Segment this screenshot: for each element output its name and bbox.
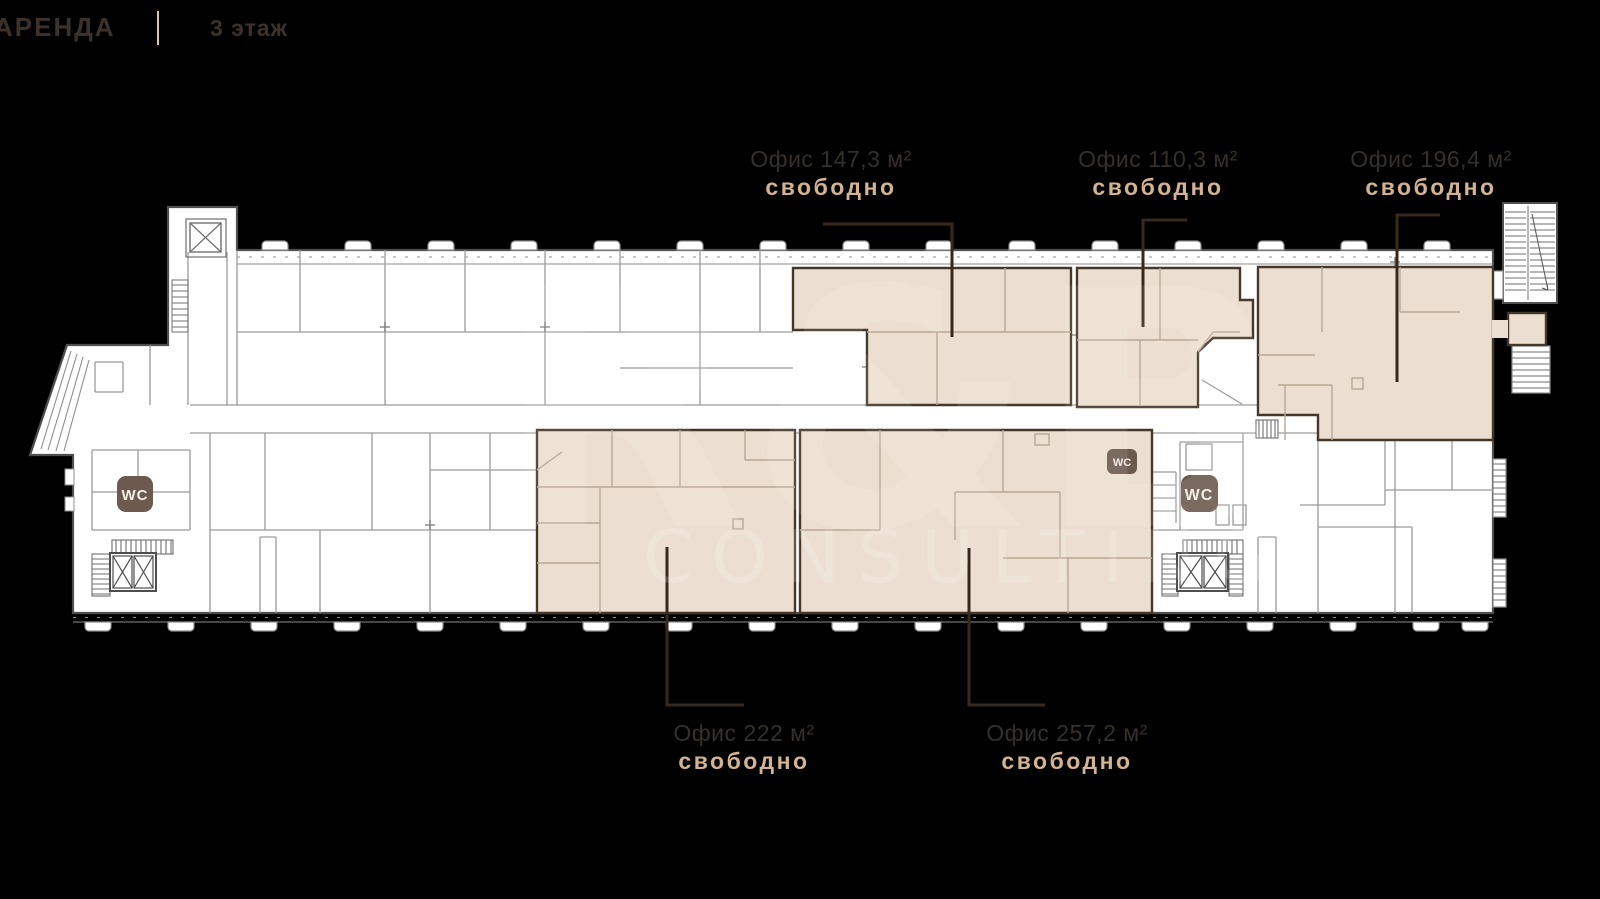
header-brand: АРЕНДА xyxy=(0,12,116,43)
svg-text:WC: WC xyxy=(122,487,149,504)
office-label-222: Офис 222 м² свободно xyxy=(673,720,814,776)
facade-bumps-bottom xyxy=(85,622,1488,631)
office-name: Офис 147,3 м² xyxy=(750,146,911,173)
header-divider xyxy=(157,11,159,45)
office-area-196-4-annex[interactable] xyxy=(1508,313,1546,345)
office-label-110-3: Офис 110,3 м² свободно xyxy=(1078,146,1238,202)
wc-badge-left: WC xyxy=(117,476,153,512)
office-name: Офис 257,2 м² xyxy=(986,720,1147,747)
facade-bumps-top xyxy=(262,241,1450,250)
wc-badge-middle-small: WC xyxy=(1107,449,1137,474)
office-area-196-4-bridge xyxy=(1492,320,1508,338)
elevators-middle xyxy=(1177,553,1228,591)
office-area-196-4[interactable] xyxy=(1258,267,1493,440)
elevators-bottom-left xyxy=(110,553,156,591)
office-label-257-2: Офис 257,2 м² свободно xyxy=(986,720,1147,776)
office-label-147-3: Офис 147,3 м² свободно xyxy=(750,146,911,202)
svg-text:WC: WC xyxy=(1185,487,1214,504)
office-status: свободно xyxy=(986,747,1147,776)
svg-text:WC: WC xyxy=(1113,457,1131,469)
header-floor-label: 3 этаж xyxy=(210,15,288,42)
office-name: Офис 196,4 м² xyxy=(1350,146,1511,173)
wc-badge-middle-large: WC xyxy=(1181,475,1218,512)
office-name: Офис 222 м² xyxy=(673,720,814,747)
office-status: свободно xyxy=(673,747,814,776)
office-area-257-2[interactable] xyxy=(800,430,1152,613)
office-status: свободно xyxy=(1350,173,1511,202)
office-status: свободно xyxy=(1078,173,1238,202)
office-name: Офис 110,3 м² xyxy=(1078,146,1238,173)
office-status: свободно xyxy=(750,173,911,202)
office-label-196-4: Офис 196,4 м² свободно xyxy=(1350,146,1511,202)
